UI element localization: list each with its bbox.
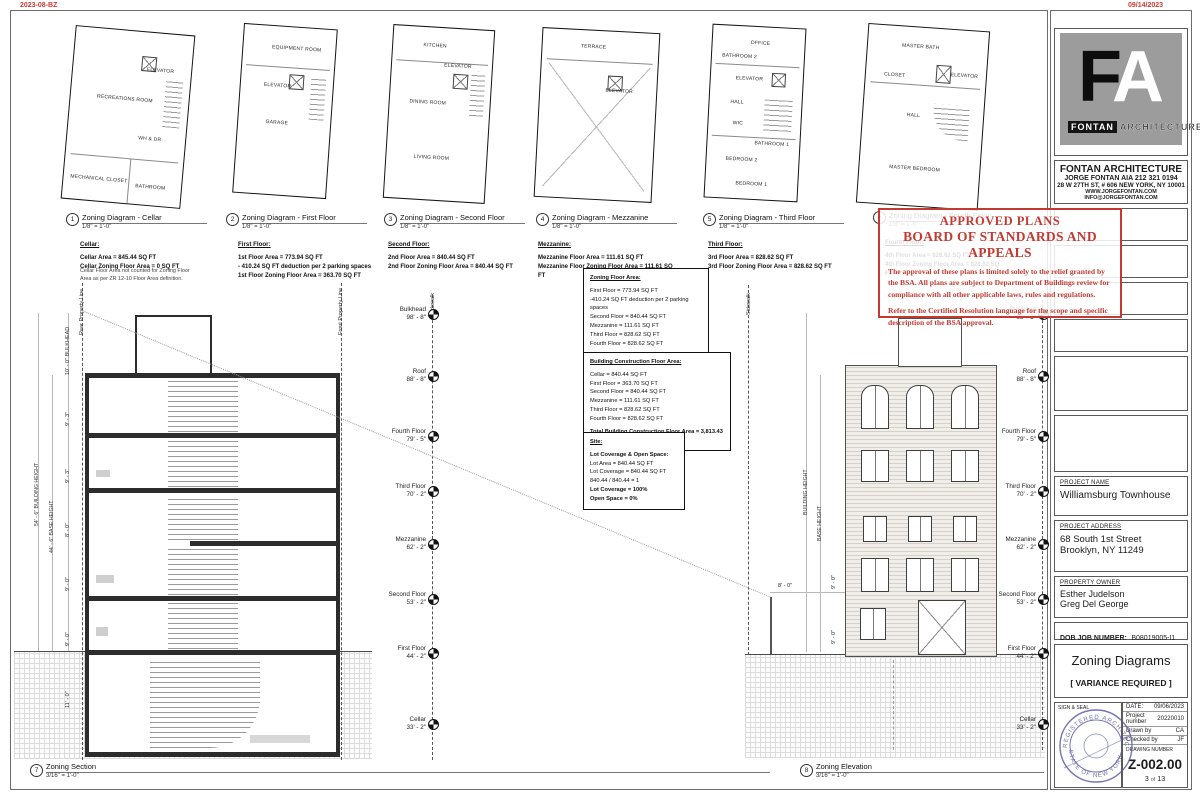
view-title: Zoning Elevation: [816, 762, 1044, 773]
window: [861, 450, 889, 482]
room-label: CLOSET: [884, 72, 906, 79]
level-marker-icon: [1038, 371, 1049, 382]
logo-letter-a: A: [1112, 41, 1164, 113]
room-label: BEDROOM 1: [735, 182, 767, 189]
arched-window: [906, 385, 934, 429]
elevation-sidewalk-line: [748, 285, 749, 655]
room-label: BEDROOM 2: [725, 157, 757, 164]
property-owner-2: Greg Del George: [1060, 599, 1182, 609]
view-scale: 1/8" = 1'-0": [242, 224, 271, 230]
first-floor-slab: [85, 650, 340, 655]
view-title: Zoning Diagram - Cellar: [82, 213, 207, 224]
room-label: ELEVATOR: [264, 83, 292, 90]
level-flag: Cellar33' - 2": [950, 716, 1036, 732]
arched-window: [951, 385, 979, 429]
room-label: ELEVATOR: [444, 63, 472, 70]
rear-property-line-label: Rear Property Line: [79, 271, 85, 335]
bsa-approval-stamp: APPROVED PLANS BOARD OF STANDARDS AND AP…: [878, 208, 1122, 318]
view-title: Zoning Section: [46, 762, 770, 773]
elevator-shaft-icon: [453, 74, 469, 90]
rear-property-line: [82, 283, 83, 760]
fixture: [96, 470, 110, 477]
room-label: OFFICE: [751, 41, 771, 48]
fixture: [96, 575, 114, 583]
level-marker-icon: [1038, 431, 1049, 442]
project-address-label: PROJECT ADDRESS: [1060, 524, 1182, 530]
level-flag: Fourth Floor79' - 5": [340, 428, 426, 444]
variance-note: [ VARIANCE REQUIRED ]: [1055, 678, 1187, 688]
view-scale: 1/8" = 1'-0": [82, 224, 111, 230]
room-label: BATHROOM 2: [722, 53, 757, 60]
fourth-floor-slab: [85, 433, 340, 438]
story-dim: 9' - 0": [65, 547, 71, 591]
stair-hatch: [163, 79, 184, 128]
section-stair: [168, 380, 238, 432]
project-address-box: PROJECT ADDRESS 68 South 1st Street Broo…: [1054, 520, 1188, 572]
view-title: Zoning Diagram - Mezzanine: [552, 213, 677, 224]
dob-number-label: DOB JOB NUMBER:: [1060, 635, 1127, 642]
room-label: BATHROOM: [135, 184, 165, 192]
view-title: Zoning Diagram - Second Floor: [400, 213, 525, 224]
bsa-case-number: 2023-08-BZ: [20, 2, 57, 9]
level-marker-icon: [1038, 594, 1049, 605]
firm-name: FONTAN ARCHITECTURE: [1055, 164, 1187, 175]
level-flag: Mezzanine62' - 2": [340, 536, 426, 552]
room-label: RECREATIONS ROOM: [97, 94, 153, 104]
level-marker-icon: [428, 309, 439, 320]
room-label: MECHANICAL CLOSET: [70, 175, 128, 185]
note-first: First Floor: 1st Floor Area = 773.94 SQ …: [238, 240, 373, 282]
room-label: LIVING ROOM: [413, 155, 449, 163]
setback-dim-line: [770, 592, 845, 593]
arched-window: [861, 385, 889, 429]
story-dim: 9' - 0": [831, 604, 837, 644]
roof-slab: [85, 373, 340, 378]
revision-box: [1054, 356, 1188, 411]
view-number: 5: [703, 213, 716, 226]
story-dim: 9' - 3": [65, 439, 71, 483]
view-scale: 1/8" = 1'-0": [719, 224, 748, 230]
level-flag: Third Floor70' - 2": [340, 483, 426, 499]
front-property-line-label: Front Property Line: [338, 271, 344, 335]
section-stair: [168, 603, 238, 649]
setback-dim: 8' - 0": [778, 583, 792, 589]
cellar-slab: [85, 752, 340, 757]
fixture: [250, 735, 310, 743]
story-dim: 11' - 0": [65, 664, 71, 708]
story-dim: 9' - 0": [831, 549, 837, 589]
section-stair-cellar: [150, 660, 260, 748]
story-dim: 9' - 3": [65, 382, 71, 426]
room-label: DINING ROOM: [409, 99, 446, 107]
fixture: [96, 627, 108, 636]
section-stair: [168, 548, 238, 595]
plan-partition: [246, 64, 330, 71]
stamp-title: APPROVED PLANS: [888, 214, 1112, 229]
level-marker-icon: [428, 486, 439, 497]
note-cellar-footnote: Cellar Floor Area not counted for Zoning…: [80, 268, 195, 283]
note-second: Second Floor: 2nd Floor Area = 840.44 SQ…: [388, 240, 518, 272]
view-scale: 3/16" = 1'-0": [46, 773, 79, 779]
stair-hatch: [931, 103, 969, 141]
stamp-paragraph: Refer to the Certified Resolution langua…: [888, 305, 1112, 328]
building-height-dim: 54' - 6" BUILDING HEIGHT: [34, 436, 40, 526]
ground-hatch-elevation: [745, 654, 1045, 758]
room-label: EQUIPMENT ROOM: [272, 45, 322, 54]
revision-box: [1054, 415, 1188, 472]
window: [906, 450, 934, 482]
sheet-title-box: Zoning Diagrams [ VARIANCE REQUIRED ]: [1054, 644, 1188, 698]
project-address-line1: 68 South 1st Street: [1060, 534, 1182, 545]
level-marker-icon: [1038, 648, 1049, 659]
window: [906, 558, 934, 592]
stamp-date: 09/14/2023: [1128, 2, 1163, 9]
stamp-subtitle: BOARD OF STANDARDS AND APPEALS: [888, 229, 1112, 261]
firm-info-box: FONTAN ARCHITECTURE JORGE FONTAN AIA 212…: [1054, 160, 1188, 204]
floor-plan-second: KITCHEN ELEVATOR DINING ROOM LIVING ROOM: [383, 24, 495, 204]
window: [860, 608, 886, 640]
project-name-label: PROJECT NAME: [1060, 480, 1182, 486]
property-owner-label: PROPERTY OWNER: [1060, 580, 1182, 586]
level-marker-icon: [428, 431, 439, 442]
stair-hatch: [469, 71, 486, 116]
view-number: 1: [66, 213, 79, 226]
level-flag: Fourth Floor79' - 5": [950, 428, 1036, 444]
fontan-architecture-logo: F A FONTAN ARCHITECTURE: [1060, 33, 1182, 145]
second-floor-slab: [85, 596, 340, 601]
logo-bar-fontan: FONTAN: [1068, 121, 1117, 133]
setback-post: [770, 597, 772, 654]
view-number: 2: [226, 213, 239, 226]
level-flag: First Floor44' - 2": [950, 645, 1036, 661]
room-label: MASTER BATH: [902, 43, 940, 51]
project-address-line2: Brooklyn, NY 11249: [1060, 545, 1182, 556]
window: [908, 516, 932, 542]
room-label: ELEVATOR: [950, 73, 978, 80]
section-stair: [168, 495, 238, 540]
date-value: 09/06/2023: [1154, 704, 1184, 710]
base-height-dim: 44' - 6" BASE HEIGHT: [49, 469, 55, 553]
property-owner-box: PROPERTY OWNER Esther Judelson Greg Del …: [1054, 576, 1188, 618]
third-floor-slab: [85, 488, 340, 493]
view-scale: 1/8" = 1'-0": [400, 224, 429, 230]
level-flag: Second Floor53' - 2": [950, 591, 1036, 607]
view-number: 4: [536, 213, 549, 226]
window: [951, 558, 979, 592]
sidewalk-line: [432, 295, 433, 760]
level-marker-icon: [428, 371, 439, 382]
window: [863, 516, 887, 542]
logo-bar-architecture: ARCHITECTURE: [1117, 121, 1200, 133]
mezzanine-slab: [190, 541, 340, 546]
level-flag: Bulkhead98' - 8": [340, 306, 426, 322]
room-label: WH & DR: [138, 136, 161, 143]
level-marker-icon: [1038, 486, 1049, 497]
project-number-value: 20220010: [1157, 716, 1184, 722]
bulkhead-dim: 10' - 0" BULKHEAD: [65, 311, 71, 375]
svg-text:STATE OF NEW YORK: STATE OF NEW YORK: [1067, 750, 1125, 779]
firm-address: 28 W 27TH ST, # 606 NEW YORK, NY 10001: [1055, 182, 1187, 189]
view-scale: 3/16" = 1'-0": [816, 773, 849, 779]
level-flag: Third Floor70' - 2": [950, 483, 1036, 499]
room-label: BATHROOM 1: [754, 141, 789, 148]
story-dim: 9' - 0": [65, 602, 71, 646]
level-marker-icon: [428, 719, 439, 730]
stair-hatch: [308, 76, 326, 121]
level-marker-icon: [1038, 539, 1049, 550]
level-marker-icon: [1038, 719, 1049, 730]
room-label: ELEVATOR: [735, 77, 763, 84]
sheet-title: Zoning Diagrams: [1055, 653, 1187, 668]
plan-partition: [715, 63, 800, 68]
level-flag: First Floor44' - 2": [340, 645, 426, 661]
view-number: 8: [800, 764, 813, 777]
room-label: ELEVATOR: [146, 68, 174, 76]
room-label: WIC: [733, 121, 744, 127]
drawn-by-value: CA: [1176, 728, 1184, 734]
view-scale: 1/8" = 1'-0": [552, 224, 581, 230]
level-flag: Cellar33' - 2": [340, 716, 426, 732]
project-name-value: Williamsburg Townhouse: [1060, 490, 1182, 501]
level-flag: Mezzanine62' - 2": [950, 536, 1036, 552]
section-stair: [168, 440, 238, 487]
open-to-below-x: [542, 62, 650, 191]
view-title: Zoning Diagram - Third Floor: [719, 213, 844, 224]
property-owner-1: Esther Judelson: [1060, 589, 1182, 599]
floor-plan-cellar: RECREATIONS ROOM ELEVATOR WH & DR MECHAN…: [61, 25, 196, 209]
stair-hatch: [763, 100, 792, 132]
elevator-shaft-icon: [771, 73, 786, 88]
checked-by-value: JF: [1177, 737, 1184, 743]
room-label: HALL: [730, 100, 744, 106]
room-label: MASTER BEDROOM: [889, 165, 940, 174]
story-dim: 8' - 0": [65, 493, 71, 537]
level-marker-icon: [428, 594, 439, 605]
floor-plan-fourth: MASTER BATH CLOSET ELEVATOR HALL MASTER …: [856, 23, 990, 211]
below-grade-line: [893, 660, 894, 750]
window: [861, 558, 889, 592]
section-bulkhead: [135, 315, 212, 377]
floor-plan-third: OFFICE ELEVATOR HALL BATHROOM 2 WIC BATH…: [704, 24, 807, 203]
plan-partition: [870, 81, 980, 90]
level-marker-icon: [428, 648, 439, 659]
project-name-box: PROJECT NAME Williamsburg Townhouse: [1054, 476, 1188, 516]
level-flag: Second Floor53' - 2": [340, 591, 426, 607]
firm-phone: JORGE FONTAN AIA 212 321 0194: [1055, 175, 1187, 182]
view-title: Zoning Diagram - First Floor: [242, 213, 367, 224]
stamp-paragraph: The approval of these plans is limited s…: [888, 266, 1112, 300]
elevation-sidewalk-label: Sidewalk: [746, 275, 752, 315]
level-flag: Roof88' - 8": [340, 368, 426, 384]
room-label: KITCHEN: [423, 43, 447, 50]
note-third: Third Floor: 3rd Floor Area = 828.62 SQ …: [708, 240, 838, 272]
summary-site: Site: Lot Coverage & Open Space: Lot Are…: [583, 432, 685, 510]
dob-number-box: DOB JOB NUMBER: B08019005-I1: [1054, 622, 1188, 640]
room-label: HALL: [907, 113, 921, 119]
view-number: 7: [30, 764, 43, 777]
level-marker-icon: [428, 539, 439, 550]
plan-partition: [396, 60, 488, 67]
dob-number-value: B08019005-I1: [1131, 635, 1175, 642]
architect-seal: REGISTERED ARCHITECT STATE OF NEW YORK: [1056, 706, 1136, 786]
drawing-sheet: 2023-08-BZ 09/14/2023 RECREATIONS ROOM E…: [0, 0, 1200, 800]
elevation-building-height: BUILDING HEIGHT: [803, 447, 809, 515]
floor-plan-mezzanine: TERRACE ELEVATOR: [534, 27, 661, 203]
elevation-marker-line: [1042, 300, 1043, 750]
view-number: 3: [384, 213, 397, 226]
floor-plan-first: EQUIPMENT ROOM ELEVATOR GARAGE: [232, 23, 338, 199]
window: [951, 450, 979, 482]
room-label: TERRACE: [581, 44, 607, 51]
firm-web: WWW.JORGEFONTAN.COM INFO@JORGEFONTAN.COM: [1055, 189, 1187, 201]
elevator-shaft-icon: [935, 64, 951, 83]
front-property-line: [341, 283, 342, 760]
plan-partition: [70, 153, 178, 163]
level-flag: Roof88' - 8": [950, 368, 1036, 384]
room-label: GARAGE: [265, 120, 288, 127]
elevation-base-height: BASE HEIGHT: [817, 481, 823, 541]
